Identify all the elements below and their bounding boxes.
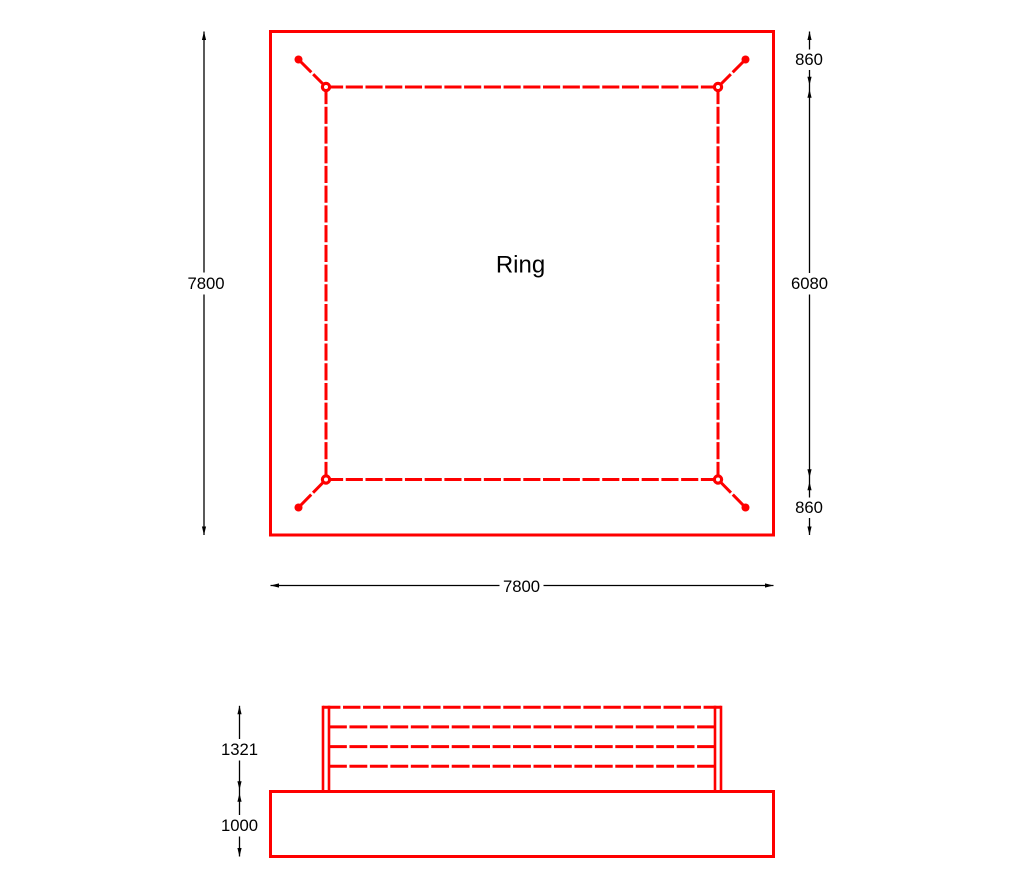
svg-text:Ring: Ring: [496, 252, 545, 279]
svg-text:1321: 1321: [221, 740, 258, 759]
svg-text:1000: 1000: [221, 816, 258, 835]
svg-text:860: 860: [795, 50, 823, 69]
svg-text:6080: 6080: [791, 274, 828, 293]
svg-text:860: 860: [795, 498, 823, 517]
svg-text:7800: 7800: [187, 274, 224, 293]
svg-text:7800: 7800: [503, 577, 540, 596]
